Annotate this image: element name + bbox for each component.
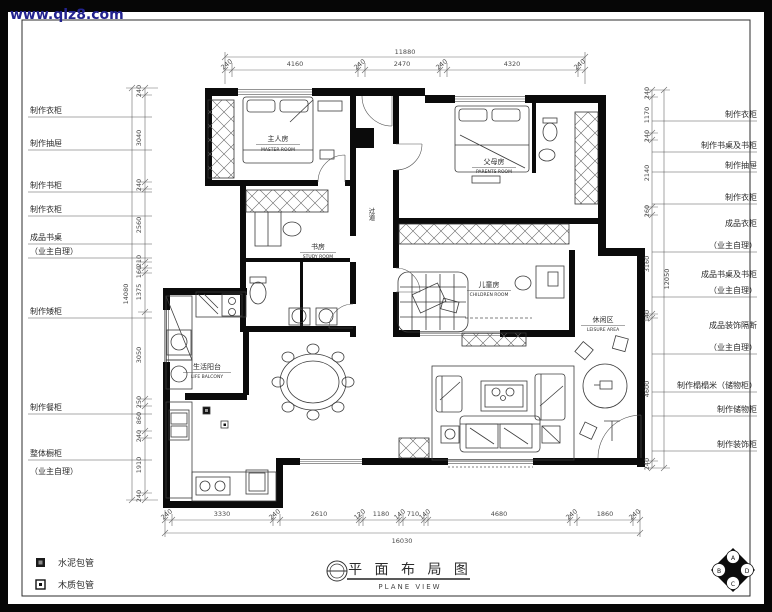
svg-text:1170: 1170 — [643, 107, 651, 124]
svg-text:3330: 3330 — [214, 510, 231, 518]
svg-text:240: 240 — [643, 130, 651, 142]
svg-text:1860: 1860 — [597, 510, 614, 518]
right-label: 制作衣柜 — [725, 192, 757, 202]
right-label: 制作装饰柜 — [717, 439, 757, 449]
right-label: 制作衣柜 — [725, 109, 757, 119]
right-wardrobe — [575, 112, 598, 204]
tv-cabinet — [462, 333, 526, 346]
svg-text:250: 250 — [135, 396, 143, 408]
svg-text:父母房: 父母房 — [484, 157, 505, 166]
svg-text:210: 210 — [135, 255, 143, 267]
svg-text:860: 860 — [135, 412, 143, 424]
svg-text:书房: 书房 — [311, 242, 325, 251]
drawing-title-cn: 平 面 布 局 图 — [348, 562, 472, 578]
right-label: 制作书桌及书柜 — [701, 140, 757, 150]
svg-text:主人房: 主人房 — [268, 134, 289, 143]
right-label: 成品装饰隔断 — [709, 320, 757, 330]
svg-text:儿童房: 儿童房 — [479, 280, 500, 289]
svg-text:PARENTS ROOM: PARENTS ROOM — [476, 169, 512, 175]
svg-text:4160: 4160 — [287, 60, 304, 68]
compass-letter-c: C — [731, 581, 735, 588]
svg-text:CHILDREN ROOM: CHILDREN ROOM — [470, 292, 509, 298]
left-label: 成品书桌 — [30, 232, 62, 242]
svg-text:2560: 2560 — [135, 217, 143, 234]
svg-text:240: 240 — [135, 430, 143, 442]
left-label: 制作抽屉 — [30, 138, 62, 148]
svg-text:3040: 3040 — [135, 130, 143, 147]
left-label: 制作矮柜 — [30, 306, 62, 316]
svg-text:1910: 1910 — [135, 457, 143, 474]
svg-text:4680: 4680 — [491, 510, 508, 518]
shoe-cabinet — [399, 438, 429, 458]
svg-text:2470: 2470 — [394, 60, 411, 68]
compass-letter-d: D — [745, 568, 750, 575]
right-label: 成品书桌及书柜 — [701, 269, 757, 279]
dim-bottom-total: 16030 — [392, 537, 413, 545]
svg-text:MASTER ROOM: MASTER ROOM — [261, 147, 295, 153]
svg-text:240: 240 — [643, 87, 651, 99]
svg-text:3050: 3050 — [135, 347, 143, 364]
left-label: （业主自理） — [30, 466, 78, 476]
svg-text:LIFE BALCONY: LIFE BALCONY — [191, 374, 223, 380]
right-label: 成品衣柜 — [725, 218, 757, 228]
watermark-text: www.qlz8.com — [10, 7, 124, 23]
left-label: 制作衣柜 — [30, 204, 62, 214]
drawing-title-en: PLANE VIEW — [378, 583, 441, 591]
master-wardrobe — [208, 100, 234, 178]
legend-wood-label: 木质包管 — [58, 579, 94, 591]
dim-left-total: 14080 — [122, 284, 130, 305]
left-label: 制作餐柜 — [30, 402, 62, 412]
svg-text:240: 240 — [135, 490, 143, 502]
corridor-closet — [399, 224, 569, 244]
right-label: （业主自理） — [709, 342, 757, 352]
svg-text:240: 240 — [643, 458, 651, 470]
room-label-hallway: 过道 — [367, 206, 375, 222]
left-label: 制作衣柜 — [30, 105, 62, 115]
right-label: 制作储物柜 — [717, 404, 757, 414]
right-label: 制作抽屉 — [725, 160, 757, 170]
svg-text:4600: 4600 — [643, 381, 651, 398]
right-label: 制作榻榻米（储物柜） — [677, 380, 757, 390]
svg-text:1375: 1375 — [135, 284, 143, 301]
legend-cement-label: 水泥包管 — [58, 557, 94, 569]
svg-text:生活阳台: 生活阳台 — [193, 362, 221, 371]
right-label: （业主自理） — [709, 240, 757, 250]
svg-text:260: 260 — [643, 205, 651, 217]
svg-text:2140: 2140 — [643, 165, 651, 182]
floor-plan-canvas: www.qlz8.com — [0, 0, 772, 612]
left-label: 制作书柜 — [30, 180, 62, 190]
dim-right-total: 12050 — [663, 269, 671, 290]
svg-text:2610: 2610 — [311, 510, 328, 518]
drawing-sheet: www.qlz8.com — [0, 0, 772, 612]
svg-text:140: 140 — [643, 310, 651, 322]
svg-text:240: 240 — [135, 179, 143, 191]
dim-top-total: 11880 — [395, 48, 416, 56]
svg-text:4320: 4320 — [504, 60, 521, 68]
svg-text:1180: 1180 — [373, 510, 390, 518]
compass-letter-b: B — [717, 568, 721, 575]
study-bookcase — [246, 190, 328, 212]
left-label: 整体橱柜 — [30, 448, 62, 458]
svg-text:LEISURE AREA: LEISURE AREA — [587, 327, 620, 333]
svg-text:3160: 3160 — [643, 256, 651, 273]
svg-text:240: 240 — [135, 85, 143, 97]
svg-text:160: 160 — [135, 266, 143, 278]
left-label: （业主自理） — [30, 246, 78, 256]
right-label: （业主自理） — [709, 285, 757, 295]
svg-text:STUDY ROOM: STUDY ROOM — [303, 254, 334, 260]
svg-text:休闲区: 休闲区 — [593, 315, 614, 324]
